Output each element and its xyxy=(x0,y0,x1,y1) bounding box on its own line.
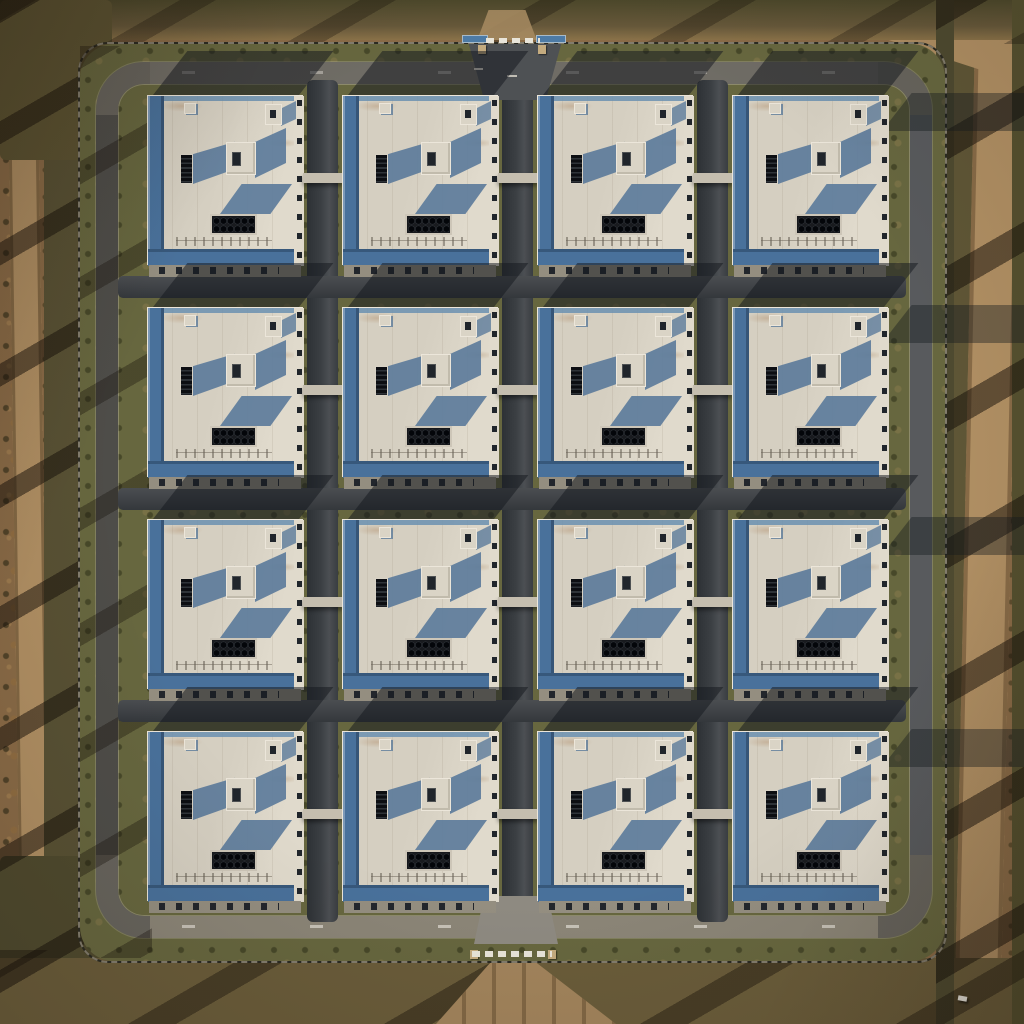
rooftop-penthouse xyxy=(811,566,841,599)
building-roof xyxy=(147,307,303,477)
hvac-shadow xyxy=(415,396,487,426)
facade-windows xyxy=(297,100,302,262)
penthouse-shadow xyxy=(840,552,871,602)
warehouse-building xyxy=(342,307,498,491)
inter-building-link xyxy=(498,173,538,183)
rooftop-box-small xyxy=(769,739,781,750)
rooftop-vent-unit xyxy=(180,366,193,396)
rooftop-penthouse xyxy=(616,354,646,387)
rooftop-vent-unit xyxy=(375,366,388,396)
building-roof xyxy=(732,519,888,689)
facade-windows xyxy=(882,100,887,262)
penthouse-shadow xyxy=(255,552,286,602)
east-facade xyxy=(879,96,889,266)
rooftop-hvac-unit xyxy=(210,850,257,871)
penthouse-shadow xyxy=(645,552,676,602)
rooftop-penthouse xyxy=(226,778,256,811)
roof-parapet-north xyxy=(162,520,294,525)
rooftop-box xyxy=(655,104,672,125)
east-facade xyxy=(879,520,889,690)
building-roof xyxy=(732,731,888,901)
rooftop-vent-unit xyxy=(765,790,778,820)
rooftop-penthouse xyxy=(421,354,451,387)
rooftop-box-hatch xyxy=(855,322,861,330)
inter-building-link xyxy=(303,385,343,395)
penthouse-shadow xyxy=(645,340,676,390)
rooftop-vent-unit xyxy=(375,790,388,820)
penthouse-window xyxy=(427,788,436,802)
roof-parapet-north xyxy=(552,732,684,737)
rooftop-box-hatch xyxy=(660,746,666,754)
roof-parapet-north xyxy=(552,520,684,525)
hvac-shadow xyxy=(805,184,877,214)
loading-dock-apron xyxy=(149,901,301,913)
building-roof xyxy=(147,731,303,901)
rooftop-box-small xyxy=(184,527,196,538)
hvac-shadow xyxy=(220,396,292,426)
rooftop-box xyxy=(460,316,477,337)
rooftop-box-small xyxy=(184,739,196,750)
hvac-shadow xyxy=(220,184,292,214)
hvac-shadow xyxy=(415,820,487,850)
blue-west-wall xyxy=(733,732,749,902)
penthouse-shadow xyxy=(450,552,481,602)
building-roof xyxy=(732,95,888,265)
rooftop-hvac-unit xyxy=(795,214,842,235)
inter-building-link xyxy=(498,809,538,819)
facade-windows xyxy=(492,100,497,262)
rooftop-box-hatch xyxy=(465,746,471,754)
rooftop-vent-unit xyxy=(765,366,778,396)
rooftop-box-hatch xyxy=(270,534,276,542)
penthouse-window xyxy=(427,576,436,590)
blue-south-wall xyxy=(538,885,685,902)
blue-west-wall xyxy=(343,96,359,266)
building-cast-shadow xyxy=(348,51,528,95)
rooftop-box xyxy=(655,528,672,549)
rooftop-box-small xyxy=(574,315,586,326)
rooftop-box xyxy=(850,104,867,125)
hvac-shadow xyxy=(610,820,682,850)
loading-dock-apron xyxy=(344,901,496,913)
penthouse-shadow xyxy=(450,128,481,178)
rooftop-penthouse xyxy=(226,566,256,599)
blue-west-wall xyxy=(148,96,164,266)
penthouse-shadow xyxy=(450,340,481,390)
rooftop-vent-unit xyxy=(180,154,193,184)
penthouse-window xyxy=(817,788,826,802)
penthouse-shadow xyxy=(840,340,871,390)
roof-parapet-north xyxy=(747,732,879,737)
penthouse-window xyxy=(232,152,241,166)
facade-windows xyxy=(492,736,497,898)
rooftop-vent-unit xyxy=(180,578,193,608)
warehouse-building xyxy=(342,519,498,703)
rooftop-hvac-unit xyxy=(600,426,647,447)
hvac-fans xyxy=(603,853,644,868)
penthouse-window xyxy=(622,364,631,378)
penthouse-shadow xyxy=(255,340,286,390)
blue-west-wall xyxy=(148,732,164,902)
aerial-photo-canvas xyxy=(0,0,1024,1024)
rooftop-piping xyxy=(761,661,857,670)
blue-west-wall xyxy=(538,732,554,902)
rooftop-piping xyxy=(176,873,272,882)
rooftop-vent-unit xyxy=(570,790,583,820)
hvac-shadow xyxy=(415,608,487,638)
rooftop-box xyxy=(265,104,282,125)
hvac-fans xyxy=(798,641,839,656)
inter-building-link xyxy=(693,597,733,607)
facade-windows xyxy=(297,736,302,898)
rooftop-box xyxy=(850,528,867,549)
rooftop-hvac-unit xyxy=(210,426,257,447)
rooftop-piping xyxy=(176,661,272,670)
roof-parapet-north xyxy=(357,308,489,313)
rooftop-penthouse xyxy=(226,142,256,175)
facade-windows xyxy=(297,312,302,474)
hvac-shadow xyxy=(805,396,877,426)
rooftop-vent-unit xyxy=(180,790,193,820)
rooftop-box-small xyxy=(574,527,586,538)
hvac-shadow xyxy=(610,184,682,214)
rooftop-box-small xyxy=(769,103,781,114)
penthouse-window xyxy=(232,576,241,590)
facade-windows xyxy=(492,312,497,474)
roof-parapet-north xyxy=(747,520,879,525)
rooftop-box xyxy=(850,740,867,761)
hvac-fans xyxy=(603,429,644,444)
blue-west-wall xyxy=(538,308,554,478)
rooftop-penthouse xyxy=(616,142,646,175)
penthouse-shadow xyxy=(255,128,286,178)
rooftop-piping xyxy=(371,873,467,882)
blue-south-wall xyxy=(343,885,490,902)
loading-dock-apron xyxy=(734,901,886,913)
warehouse-building xyxy=(537,519,693,703)
inter-building-link xyxy=(498,597,538,607)
rooftop-penthouse xyxy=(616,778,646,811)
rooftop-hvac-unit xyxy=(405,850,452,871)
rooftop-penthouse xyxy=(616,566,646,599)
hvac-shadow xyxy=(805,820,877,850)
penthouse-window xyxy=(817,152,826,166)
rooftop-piping xyxy=(761,873,857,882)
inter-building-link xyxy=(498,385,538,395)
rooftop-penthouse xyxy=(421,566,451,599)
rooftop-vent-unit xyxy=(570,578,583,608)
rooftop-vent-unit xyxy=(375,154,388,184)
building-cast-shadow-east xyxy=(882,517,1024,555)
rooftop-box xyxy=(460,104,477,125)
rooftop-box xyxy=(265,740,282,761)
inter-building-link xyxy=(303,597,343,607)
warehouse-building xyxy=(732,731,888,915)
facade-windows xyxy=(687,312,692,474)
warehouse-building xyxy=(732,307,888,491)
inter-building-link xyxy=(303,173,343,183)
penthouse-window xyxy=(427,364,436,378)
building-cast-shadow xyxy=(153,51,333,95)
blue-west-wall xyxy=(538,520,554,690)
penthouse-window xyxy=(817,576,826,590)
rooftop-box-hatch xyxy=(465,534,471,542)
blue-west-wall xyxy=(733,520,749,690)
rooftop-box-hatch xyxy=(465,322,471,330)
warehouse-building xyxy=(732,519,888,703)
rooftop-penthouse xyxy=(421,778,451,811)
rooftop-box-small xyxy=(574,103,586,114)
penthouse-shadow xyxy=(840,128,871,178)
inter-building-link xyxy=(303,809,343,819)
warehouse-building xyxy=(147,519,303,703)
hvac-fans xyxy=(798,853,839,868)
rooftop-vent-unit xyxy=(375,578,388,608)
facade-windows xyxy=(882,312,887,474)
rooftop-box-small xyxy=(379,527,391,538)
rooftop-piping xyxy=(371,449,467,458)
hvac-fans xyxy=(408,429,449,444)
facade-windows xyxy=(882,736,887,898)
penthouse-window xyxy=(622,152,631,166)
roof-parapet-north xyxy=(162,96,294,101)
rooftop-vent-unit xyxy=(765,578,778,608)
rooftop-penthouse xyxy=(811,354,841,387)
penthouse-window xyxy=(622,788,631,802)
rooftop-vent-unit xyxy=(765,154,778,184)
rooftop-penthouse xyxy=(421,142,451,175)
hvac-shadow xyxy=(220,608,292,638)
warehouse-building xyxy=(342,731,498,915)
rooftop-box-hatch xyxy=(270,746,276,754)
penthouse-shadow xyxy=(840,764,871,814)
rooftop-hvac-unit xyxy=(600,850,647,871)
rooftop-box xyxy=(265,316,282,337)
rooftop-penthouse xyxy=(811,142,841,175)
rooftop-piping xyxy=(761,449,857,458)
roof-parapet-north xyxy=(552,96,684,101)
hvac-fans xyxy=(408,853,449,868)
building-cast-shadow-east xyxy=(882,729,1024,767)
hvac-fans xyxy=(213,853,254,868)
rooftop-box xyxy=(460,528,477,549)
penthouse-window xyxy=(427,152,436,166)
rooftop-box xyxy=(460,740,477,761)
rooftop-penthouse xyxy=(811,778,841,811)
building-cast-shadow-east xyxy=(882,305,1024,343)
hvac-shadow xyxy=(415,184,487,214)
rooftop-hvac-unit xyxy=(210,214,257,235)
inter-building-link xyxy=(693,385,733,395)
rooftop-piping xyxy=(566,873,662,882)
rooftop-box-small xyxy=(379,315,391,326)
rooftop-hvac-unit xyxy=(795,638,842,659)
blue-west-wall xyxy=(733,308,749,478)
warehouse-building xyxy=(537,95,693,279)
hvac-fans xyxy=(408,217,449,232)
rooftop-box-small xyxy=(769,527,781,538)
blue-west-wall xyxy=(343,732,359,902)
penthouse-shadow xyxy=(645,128,676,178)
penthouse-shadow xyxy=(255,764,286,814)
warehouse-building xyxy=(147,307,303,491)
loading-dock-apron xyxy=(539,901,691,913)
hvac-fans xyxy=(213,217,254,232)
rooftop-piping xyxy=(371,661,467,670)
rooftop-box-hatch xyxy=(270,322,276,330)
rooftop-piping xyxy=(566,449,662,458)
building-roof xyxy=(537,95,693,265)
building-cast-shadow xyxy=(543,51,723,95)
east-facade xyxy=(879,308,889,478)
blue-west-wall xyxy=(148,520,164,690)
rooftop-box xyxy=(655,316,672,337)
roof-parapet-north xyxy=(747,96,879,101)
rooftop-box-hatch xyxy=(855,534,861,542)
rooftop-penthouse xyxy=(226,354,256,387)
roof-parapet-north xyxy=(162,732,294,737)
facade-windows xyxy=(687,736,692,898)
hvac-fans xyxy=(213,641,254,656)
blue-west-wall xyxy=(343,520,359,690)
rooftop-hvac-unit xyxy=(210,638,257,659)
hvac-fans xyxy=(408,641,449,656)
hvac-shadow xyxy=(220,820,292,850)
facade-windows xyxy=(687,524,692,686)
building-roof xyxy=(537,731,693,901)
blue-west-wall xyxy=(733,96,749,266)
facade-windows xyxy=(687,100,692,262)
rooftop-box-hatch xyxy=(660,110,666,118)
rooftop-hvac-unit xyxy=(795,850,842,871)
hvac-fans xyxy=(603,217,644,232)
rooftop-box-hatch xyxy=(855,746,861,754)
hvac-fans xyxy=(213,429,254,444)
rooftop-piping xyxy=(761,237,857,246)
hvac-fans xyxy=(798,429,839,444)
building-cast-shadow-east xyxy=(882,93,1024,131)
rooftop-box-small xyxy=(379,103,391,114)
rooftop-box xyxy=(850,316,867,337)
rooftop-hvac-unit xyxy=(405,214,452,235)
penthouse-shadow xyxy=(450,764,481,814)
penthouse-window xyxy=(622,576,631,590)
penthouse-shadow xyxy=(645,764,676,814)
rooftop-piping xyxy=(566,661,662,670)
penthouse-window xyxy=(232,364,241,378)
roof-parapet-north xyxy=(357,520,489,525)
rooftop-box xyxy=(655,740,672,761)
warehouse-building xyxy=(147,95,303,279)
building-roof xyxy=(537,307,693,477)
building-roof xyxy=(732,307,888,477)
blue-west-wall xyxy=(343,308,359,478)
dock-doors xyxy=(744,903,864,910)
rooftop-box-hatch xyxy=(270,110,276,118)
warehouse-building xyxy=(537,307,693,491)
building-cast-shadow xyxy=(738,51,918,95)
blue-west-wall xyxy=(148,308,164,478)
rooftop-box xyxy=(265,528,282,549)
dock-doors xyxy=(159,903,279,910)
rooftop-box-hatch xyxy=(660,534,666,542)
dock-doors xyxy=(354,903,474,910)
warehouse-building xyxy=(342,95,498,279)
rooftop-box-small xyxy=(184,103,196,114)
roof-parapet-north xyxy=(162,308,294,313)
rooftop-vent-unit xyxy=(570,366,583,396)
penthouse-window xyxy=(232,788,241,802)
rooftop-piping xyxy=(176,449,272,458)
penthouse-window xyxy=(817,364,826,378)
blue-west-wall xyxy=(538,96,554,266)
inter-building-link xyxy=(693,809,733,819)
building-roof xyxy=(342,519,498,689)
inter-building-link xyxy=(693,173,733,183)
building-roof xyxy=(147,95,303,265)
blue-south-wall xyxy=(733,885,880,902)
rooftop-hvac-unit xyxy=(795,426,842,447)
building-roof xyxy=(342,307,498,477)
rooftop-hvac-unit xyxy=(600,214,647,235)
hvac-fans xyxy=(603,641,644,656)
roof-parapet-north xyxy=(357,732,489,737)
rooftop-hvac-unit xyxy=(405,638,452,659)
rooftop-piping xyxy=(566,237,662,246)
rooftop-box-small xyxy=(184,315,196,326)
building-roof xyxy=(342,731,498,901)
hvac-shadow xyxy=(610,396,682,426)
blue-south-wall xyxy=(148,885,295,902)
east-facade xyxy=(879,732,889,902)
rooftop-vent-unit xyxy=(570,154,583,184)
facade-windows xyxy=(492,524,497,686)
building-roof xyxy=(147,519,303,689)
warehouse-building xyxy=(537,731,693,915)
facade-windows xyxy=(882,524,887,686)
rooftop-hvac-unit xyxy=(600,638,647,659)
facade-windows xyxy=(297,524,302,686)
rooftop-piping xyxy=(371,237,467,246)
hvac-shadow xyxy=(805,608,877,638)
roof-parapet-north xyxy=(552,308,684,313)
roof-parapet-north xyxy=(747,308,879,313)
rooftop-piping xyxy=(176,237,272,246)
building-roof xyxy=(537,519,693,689)
roof-parapet-north xyxy=(357,96,489,101)
rooftop-box-hatch xyxy=(465,110,471,118)
warehouse-building xyxy=(732,95,888,279)
warehouse-building xyxy=(147,731,303,915)
rooftop-box-small xyxy=(574,739,586,750)
rooftop-box-hatch xyxy=(660,322,666,330)
rooftop-hvac-unit xyxy=(405,426,452,447)
dock-doors xyxy=(549,903,669,910)
buildings-layer xyxy=(0,0,1024,1024)
rooftop-box-small xyxy=(379,739,391,750)
hvac-fans xyxy=(798,217,839,232)
rooftop-box-small xyxy=(769,315,781,326)
hvac-shadow xyxy=(610,608,682,638)
building-roof xyxy=(342,95,498,265)
rooftop-box-hatch xyxy=(855,110,861,118)
